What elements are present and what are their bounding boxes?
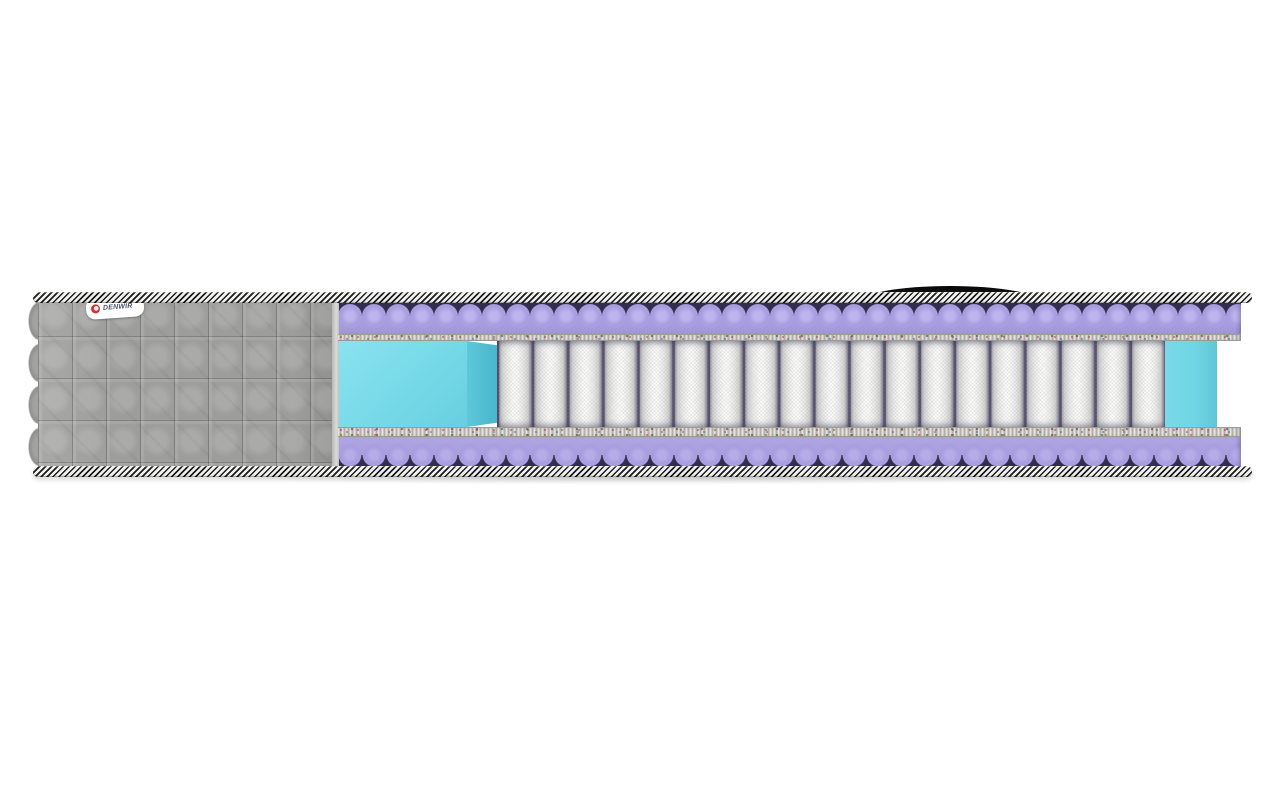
quilted-cover: DENWIR (38, 294, 338, 474)
brand-label-text: DENWIR (103, 303, 133, 312)
felt-pad-top (338, 334, 1241, 341)
wave-foam-layer-top (338, 303, 1241, 334)
edge-tape-bottom (33, 466, 1252, 477)
pocket-springs (497, 341, 1165, 427)
edge-tape-top (33, 292, 1252, 303)
side-support-foam-left (338, 341, 467, 427)
side-support-foam-right (1165, 341, 1217, 427)
cover-cut-edge (332, 296, 339, 472)
side-support-foam-left-side-face (467, 341, 497, 427)
felt-pad-bottom (338, 427, 1241, 437)
ground-shadow (45, 476, 1250, 488)
wave-foam-layer-bottom (338, 437, 1241, 468)
brand-logo-icon (91, 304, 101, 314)
mattress-product-image: DENWIR (0, 0, 1280, 800)
